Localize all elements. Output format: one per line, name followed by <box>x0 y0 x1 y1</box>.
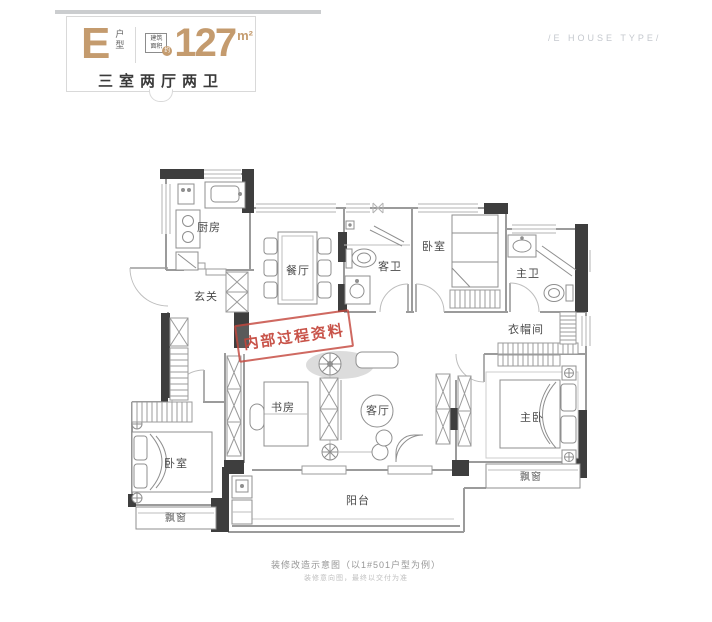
room-label-master-bedroom: 主卧 <box>520 411 544 424</box>
plan-disclaimer: 装修意向图，最终以交付为准 <box>0 573 712 583</box>
room-label-living: 客厅 <box>366 403 390 417</box>
floorplan-page: E 户型 建筑 面积 约 127 m² 三室两厅两卫 /E HOUSE TYPE… <box>0 0 712 622</box>
room-label-study: 书房 <box>271 401 295 414</box>
room-label-cloakroom: 衣帽间 <box>508 322 544 336</box>
floor-plan: 厨房 餐厅 玄关 客卫 卧室 主卫 衣帽间 书房 客厅 主卧 卧室 飘窗 飘窗 … <box>0 0 712 622</box>
plan-caption: 装修改造示意图（以1#501户型为例） <box>0 558 712 571</box>
room-label-dining: 餐厅 <box>286 263 310 277</box>
room-label-balcony: 阳台 <box>346 493 370 507</box>
room-label-guest-bath: 客卫 <box>378 259 402 273</box>
room-label-kitchen: 厨房 <box>197 221 221 234</box>
room-label-entry: 玄关 <box>194 289 218 303</box>
label-bay-window-left: 飘窗 <box>165 511 187 524</box>
room-label-bedroom-top: 卧室 <box>422 239 446 253</box>
room-label-bedroom-left: 卧室 <box>164 456 188 470</box>
room-label-master-bath: 主卫 <box>516 267 540 280</box>
label-bay-window-right: 飘窗 <box>520 470 542 483</box>
